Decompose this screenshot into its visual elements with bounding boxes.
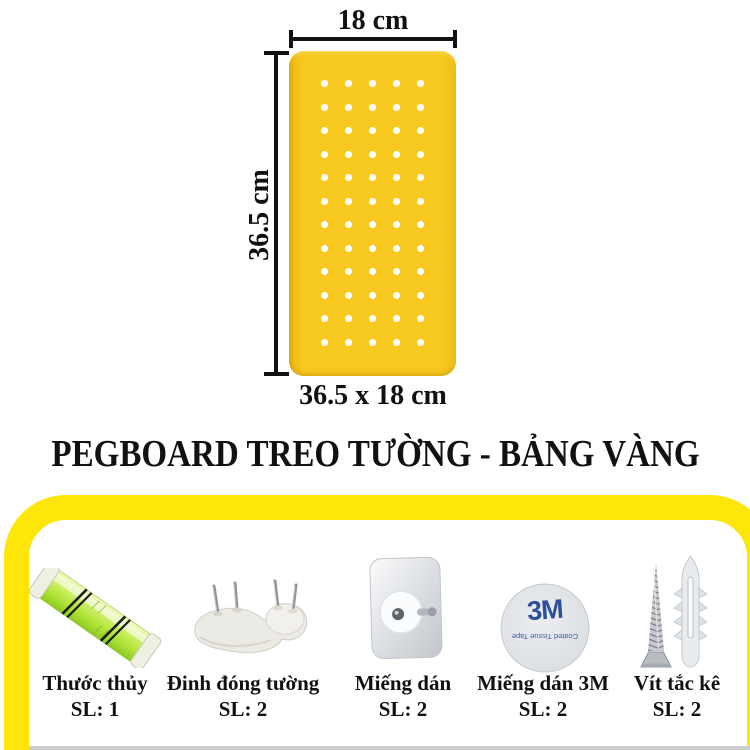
product-title: PEGBOARD TREO TƯỜNG - BẢNG VÀNG bbox=[0, 431, 750, 485]
3m-adhesive-disc-icon: 3M Coated Tissue Tape bbox=[495, 578, 595, 678]
wall-nail-hook-icon bbox=[185, 575, 315, 665]
dimension-width-label: 18 cm bbox=[289, 5, 457, 37]
adhesive-pad-icon bbox=[350, 550, 460, 670]
pegboard-image bbox=[289, 51, 456, 376]
item-qty-label: SL: 2 bbox=[587, 697, 750, 721]
pegboard-holes bbox=[313, 72, 433, 354]
dimension-size-label: 36.5 x 18 cm bbox=[279, 380, 467, 412]
dimension-width-line bbox=[289, 37, 457, 41]
3m-small-text: Coated Tissue Tape bbox=[512, 632, 578, 641]
accessory-screw-anchor: Vít tắc kê SL: 2 bbox=[587, 545, 750, 720]
dimension-height-label: 36.5 cm bbox=[245, 140, 275, 290]
3m-brand-text: 3M bbox=[526, 594, 564, 626]
product-image: 18 cm 36.5 cm 36.5 x 18 cm PEGBOARD TREO… bbox=[0, 0, 750, 750]
spirit-level-icon bbox=[20, 568, 170, 668]
item-name-label: Vít tắc kê bbox=[575, 671, 750, 696]
item-qty-label: SL: 2 bbox=[153, 697, 333, 721]
bottom-edge-strip bbox=[29, 746, 750, 750]
screw-anchor-icon bbox=[622, 550, 732, 670]
product-title-text: PEGBOARD TREO TƯỜNG - BẢNG VÀNG bbox=[51, 431, 699, 478]
